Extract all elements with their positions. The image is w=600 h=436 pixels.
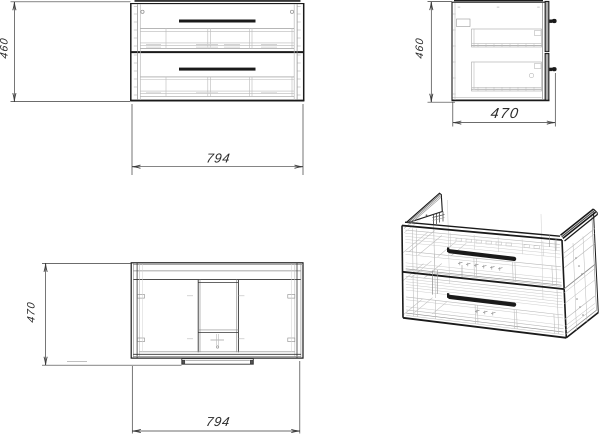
svg-text:470: 470 xyxy=(490,106,521,122)
svg-text:794: 794 xyxy=(205,151,231,166)
svg-text:470: 470 xyxy=(26,301,38,324)
svg-text:794: 794 xyxy=(205,414,231,429)
svg-text:460: 460 xyxy=(0,37,10,60)
svg-text:460: 460 xyxy=(414,37,426,60)
